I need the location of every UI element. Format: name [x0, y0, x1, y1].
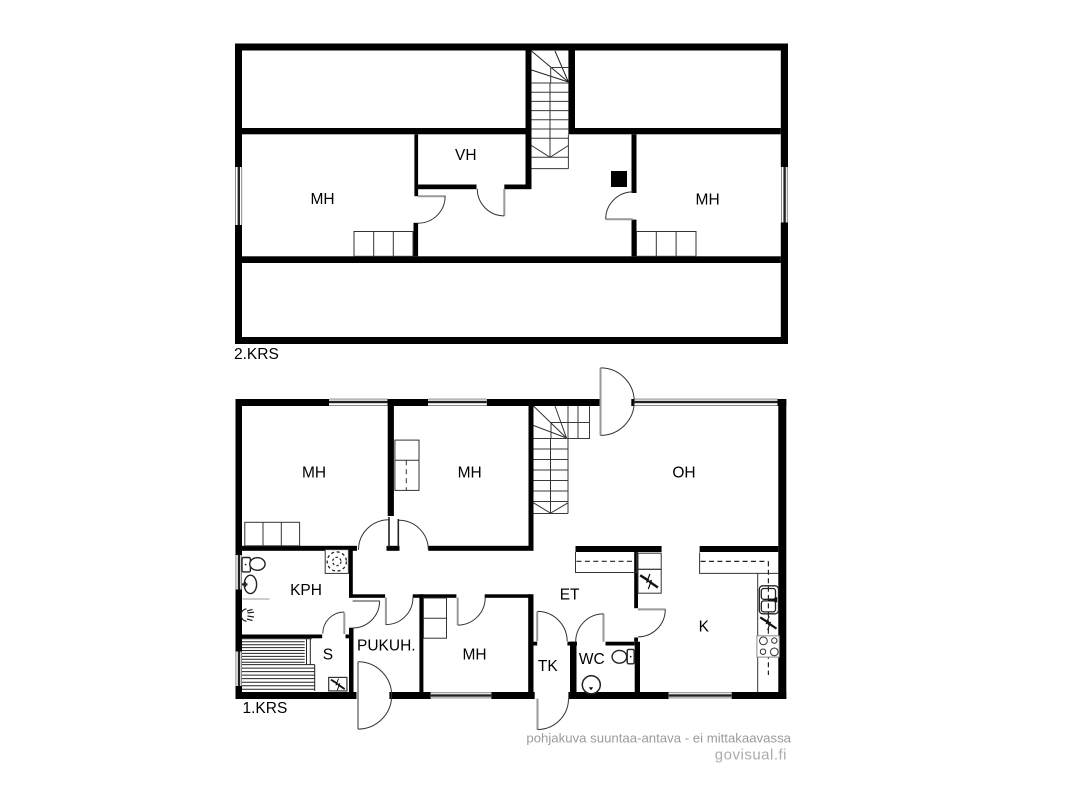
svg-text:MH: MH: [696, 192, 720, 209]
svg-text:MH: MH: [302, 465, 326, 482]
svg-text:OH: OH: [672, 465, 695, 482]
svg-text:govisual.fi: govisual.fi: [715, 747, 787, 764]
svg-text:ET: ET: [560, 587, 580, 604]
svg-text:2.KRS: 2.KRS: [234, 346, 279, 363]
svg-text:MH: MH: [458, 465, 482, 482]
svg-text:S: S: [323, 647, 333, 664]
svg-text:pohjakuva suuntaa-antava - ei: pohjakuva suuntaa-antava - ei mittakaava…: [526, 731, 791, 746]
svg-text:WC: WC: [579, 651, 605, 668]
svg-text:PUKUH.: PUKUH.: [357, 637, 416, 654]
svg-text:1.KRS: 1.KRS: [243, 700, 288, 717]
svg-text:KPH: KPH: [290, 582, 322, 599]
svg-text:MH: MH: [310, 191, 334, 208]
svg-text:MH: MH: [462, 647, 486, 664]
svg-text:VH: VH: [455, 147, 477, 164]
svg-text:TK: TK: [538, 658, 558, 675]
svg-text:K: K: [699, 619, 710, 636]
